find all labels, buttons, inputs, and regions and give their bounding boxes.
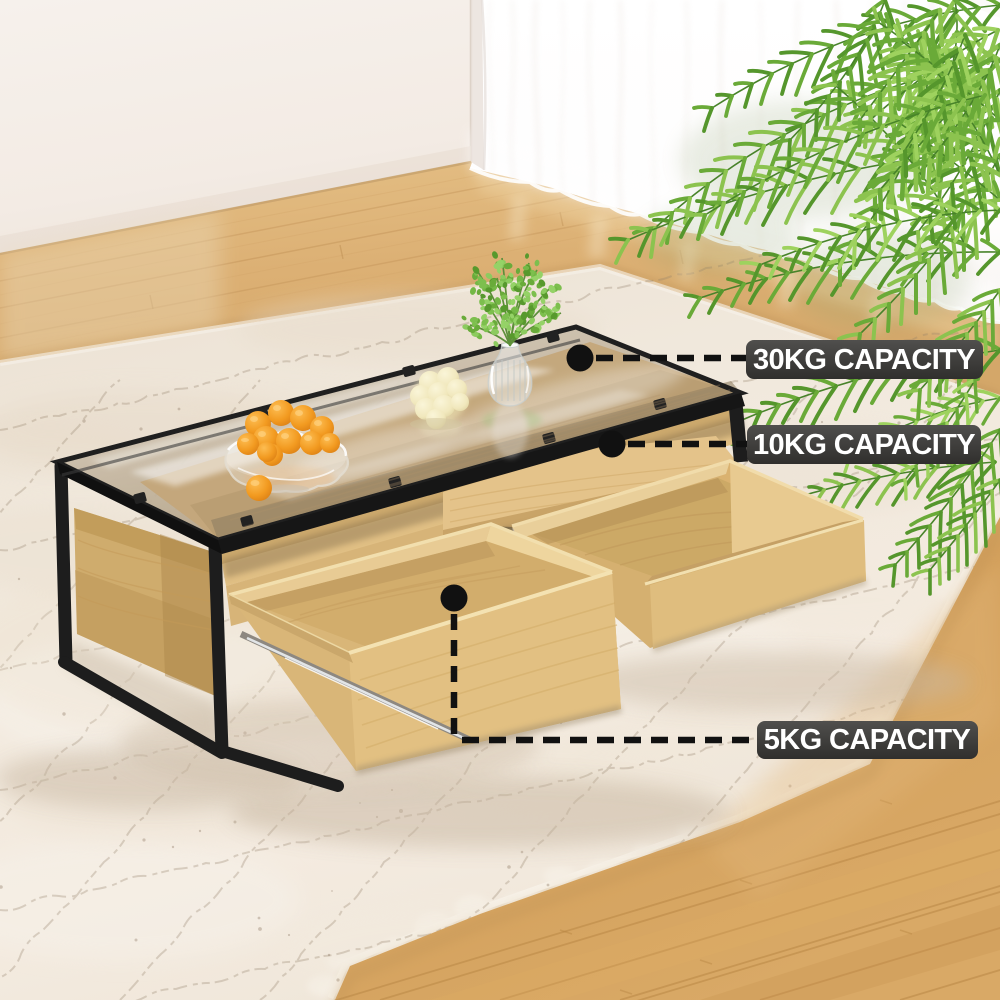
svg-text:10KG CAPACITY: 10KG CAPACITY — [753, 429, 975, 461]
svg-text:30KG CAPACITY: 30KG CAPACITY — [753, 344, 975, 376]
svg-text:5KG CAPACITY: 5KG CAPACITY — [764, 724, 971, 756]
